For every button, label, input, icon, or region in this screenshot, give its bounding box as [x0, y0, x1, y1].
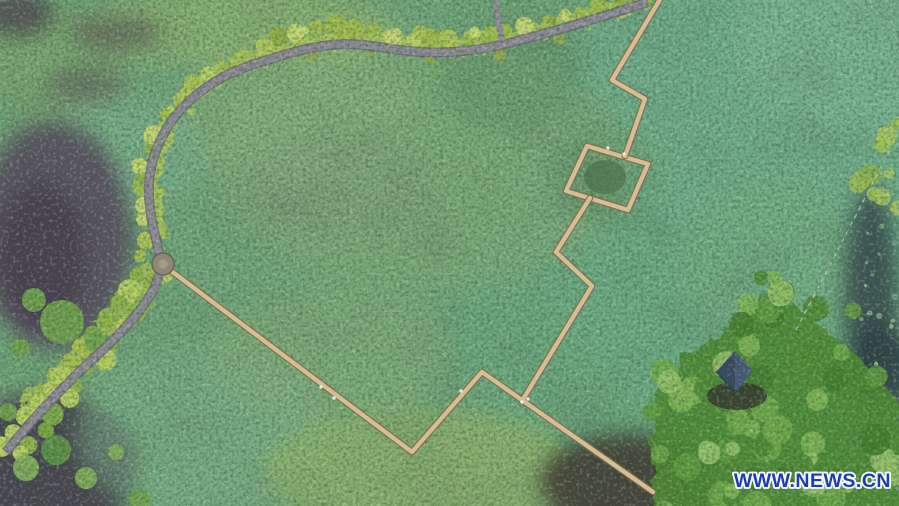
thatched-hut: [152, 253, 174, 275]
aerial-lotus-pond-photo: WWW.NEWS.CN: [0, 0, 899, 506]
foliage-speckle-light: [0, 0, 899, 506]
visitor-dot: [332, 396, 335, 399]
photo-frame: WWW.NEWS.CN: [0, 0, 899, 506]
visitor-dot: [319, 385, 322, 388]
visitor-dot: [622, 152, 625, 155]
watermark-text: WWW.NEWS.CN: [734, 470, 891, 492]
visitor-dot: [526, 397, 529, 400]
square-loop-interior: [584, 160, 626, 194]
visitor-dot: [520, 400, 523, 403]
visitor-dot: [606, 146, 609, 149]
visitor-dot: [459, 389, 462, 392]
hut-roof-peak: [159, 260, 168, 269]
